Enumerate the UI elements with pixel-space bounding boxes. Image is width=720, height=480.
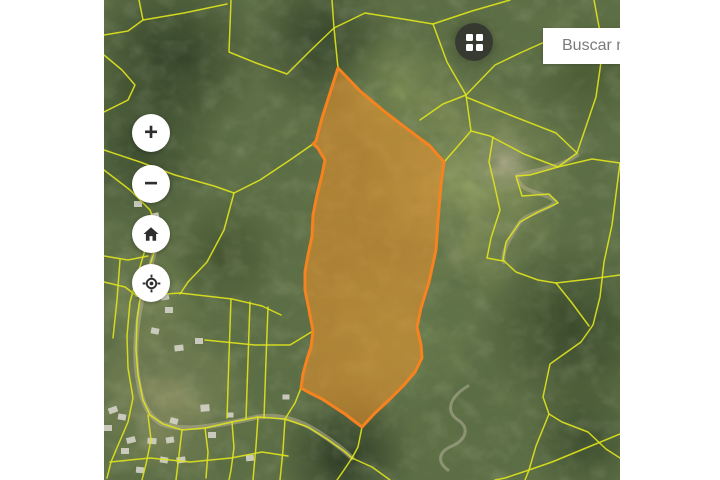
- zoom-out-button[interactable]: −: [132, 165, 170, 203]
- minus-icon: −: [144, 172, 158, 196]
- grid-icon: [466, 34, 483, 51]
- map-overlay-graphics: [104, 0, 620, 480]
- map-app-window: + −: [0, 0, 720, 480]
- locate-icon: [142, 274, 161, 293]
- zoom-in-button[interactable]: +: [132, 114, 170, 152]
- home-icon: [142, 225, 160, 243]
- right-white-margin: [620, 0, 720, 480]
- map-canvas[interactable]: + −: [104, 0, 620, 480]
- plus-icon: +: [144, 121, 158, 145]
- satellite-imagery-layer: [104, 0, 620, 480]
- basemap-gallery-button[interactable]: [455, 23, 493, 61]
- locate-button[interactable]: [132, 264, 170, 302]
- search-input[interactable]: [543, 28, 620, 64]
- left-white-margin: [0, 0, 104, 480]
- home-button[interactable]: [132, 215, 170, 253]
